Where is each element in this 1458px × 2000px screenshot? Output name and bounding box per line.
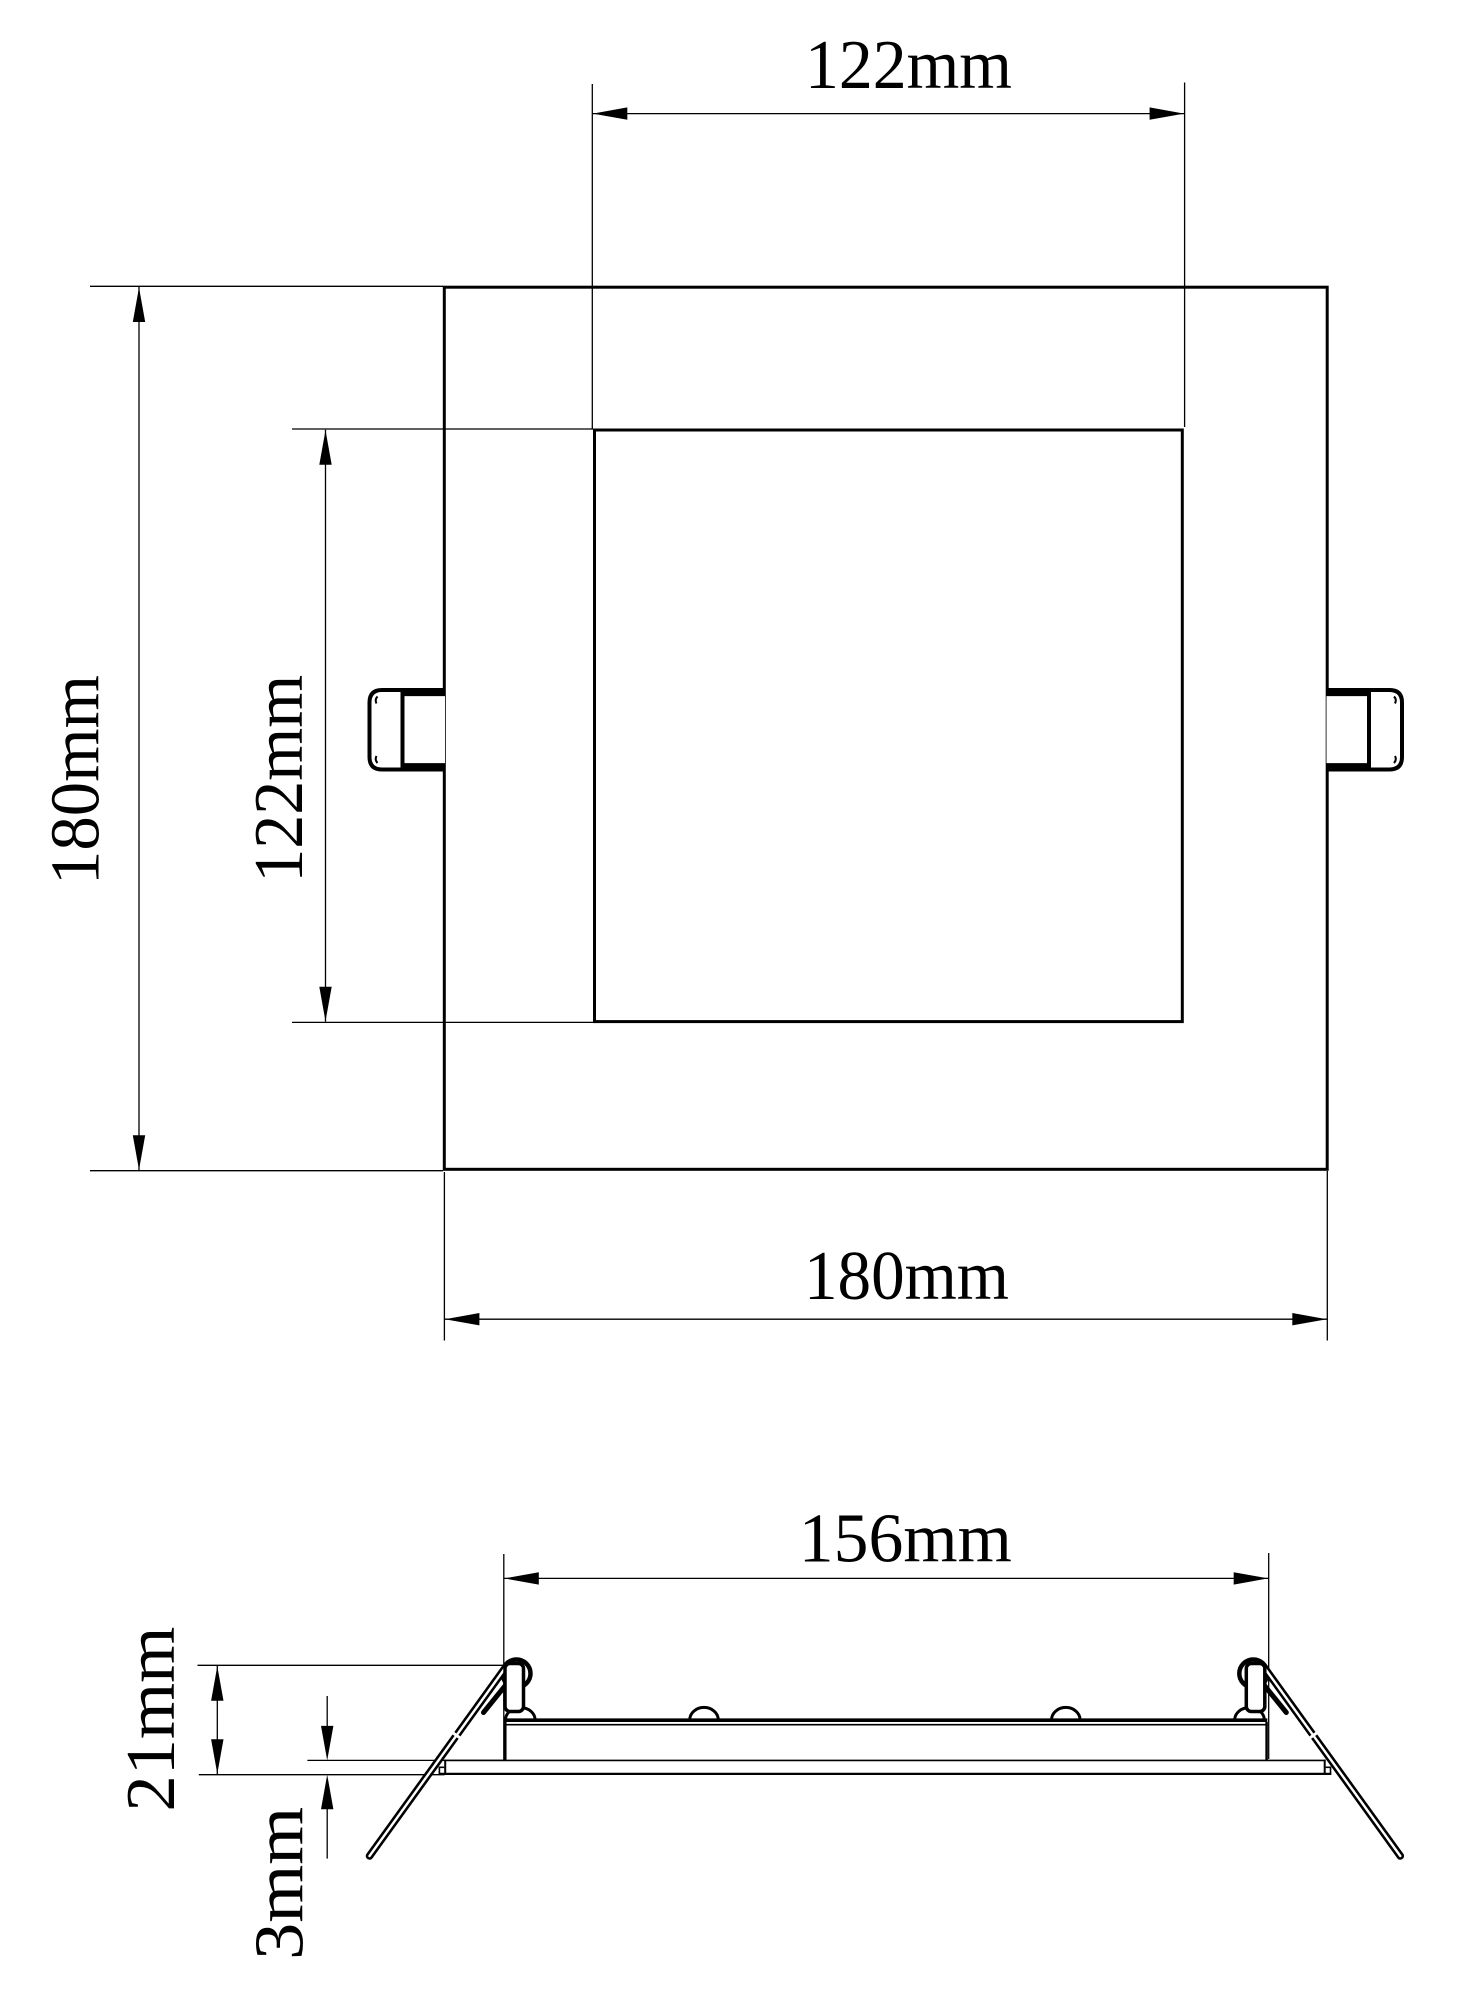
svg-text:180mm: 180mm [804,1238,1009,1315]
svg-text:122mm: 122mm [805,27,1012,104]
svg-text:180mm: 180mm [37,675,114,885]
svg-text:21mm: 21mm [113,1627,190,1812]
svg-text:156mm: 156mm [799,1501,1012,1578]
svg-text:122mm: 122mm [241,675,318,883]
svg-text:3mm: 3mm [242,1807,319,1960]
